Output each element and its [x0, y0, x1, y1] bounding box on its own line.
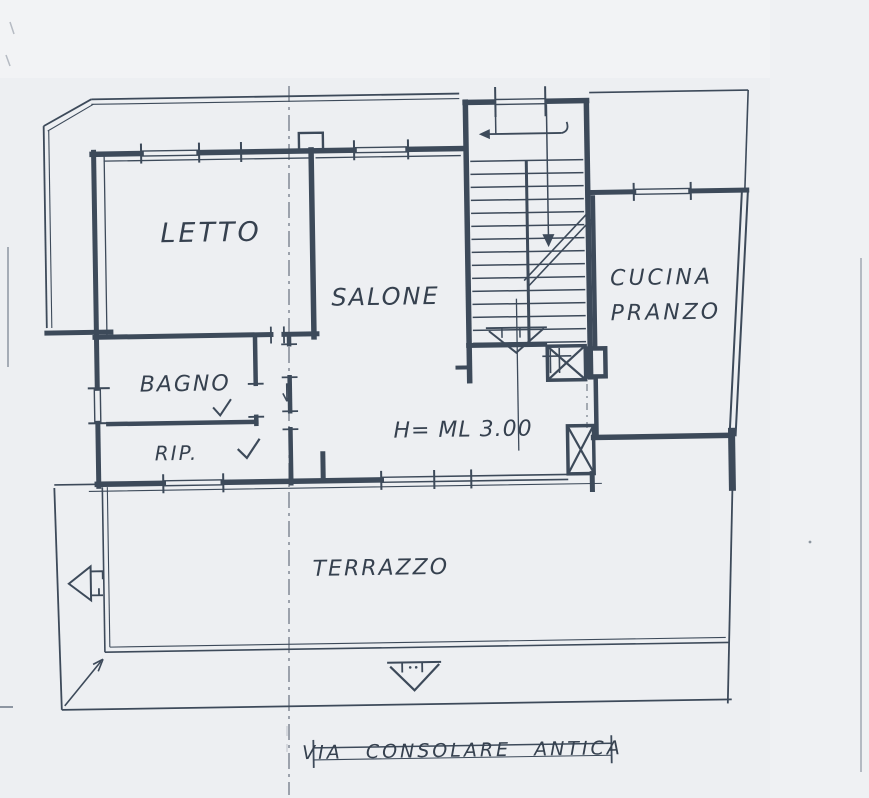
wall-end-pier — [732, 431, 733, 487]
room-label-letto: LETTO — [160, 217, 262, 250]
roof-slant-right — [743, 90, 750, 192]
room-label-cucina: CUCINA — [610, 265, 713, 292]
ceiling-height-note: H= ML 3.00 — [393, 416, 533, 443]
terrace-arrow-left-icon — [69, 566, 104, 601]
entrance-arrow-down-icon — [387, 662, 441, 691]
corner-arrow-icon — [64, 659, 104, 706]
staircase — [451, 86, 595, 452]
room-labels: LETTO SALONE CUCINA PRANZO BAGNO RIP. TE… — [137, 209, 725, 584]
wall-left-junction — [47, 332, 111, 333]
room-label-terrazzo: TERRAZZO — [312, 555, 449, 582]
check-swing-mark-bagno — [213, 399, 231, 415]
street-dimension: VIA CONSOLARE ANTICA — [302, 735, 623, 768]
scan-speck — [6, 55, 10, 66]
room-label-salone: SALONE — [331, 282, 440, 312]
scan-dot — [809, 541, 812, 544]
building-entry-door — [495, 86, 545, 117]
chamfer-corner — [43, 99, 91, 126]
floor-plan-drawing: VIA CONSOLARE ANTICA LETTO SALONE CUCINA… — [0, 0, 869, 798]
floor-plan: VIA CONSOLARE ANTICA LETTO SALONE CUCINA… — [43, 83, 759, 772]
room-label-rip: RIP. — [155, 441, 199, 466]
terrace — [54, 474, 736, 714]
stair-divider — [526, 161, 529, 343]
check-swing-mark-rip — [238, 439, 260, 458]
wall-letto-salone — [311, 150, 314, 337]
street-name-label: VIA CONSOLARE ANTICA — [302, 737, 623, 764]
shaft-lower-x-icon — [567, 425, 594, 473]
room-label-pranzo: PRANZO — [610, 299, 721, 326]
room-label-bagno: BAGNO — [140, 371, 231, 397]
shaft-upper-x-icon — [547, 346, 586, 381]
stair-break-line — [523, 214, 588, 281]
scan-speck — [10, 22, 14, 34]
roof-line-right — [589, 90, 748, 92]
scanned-floor-plan-page: VIA CONSOLARE ANTICA LETTO SALONE CUCINA… — [0, 0, 869, 798]
